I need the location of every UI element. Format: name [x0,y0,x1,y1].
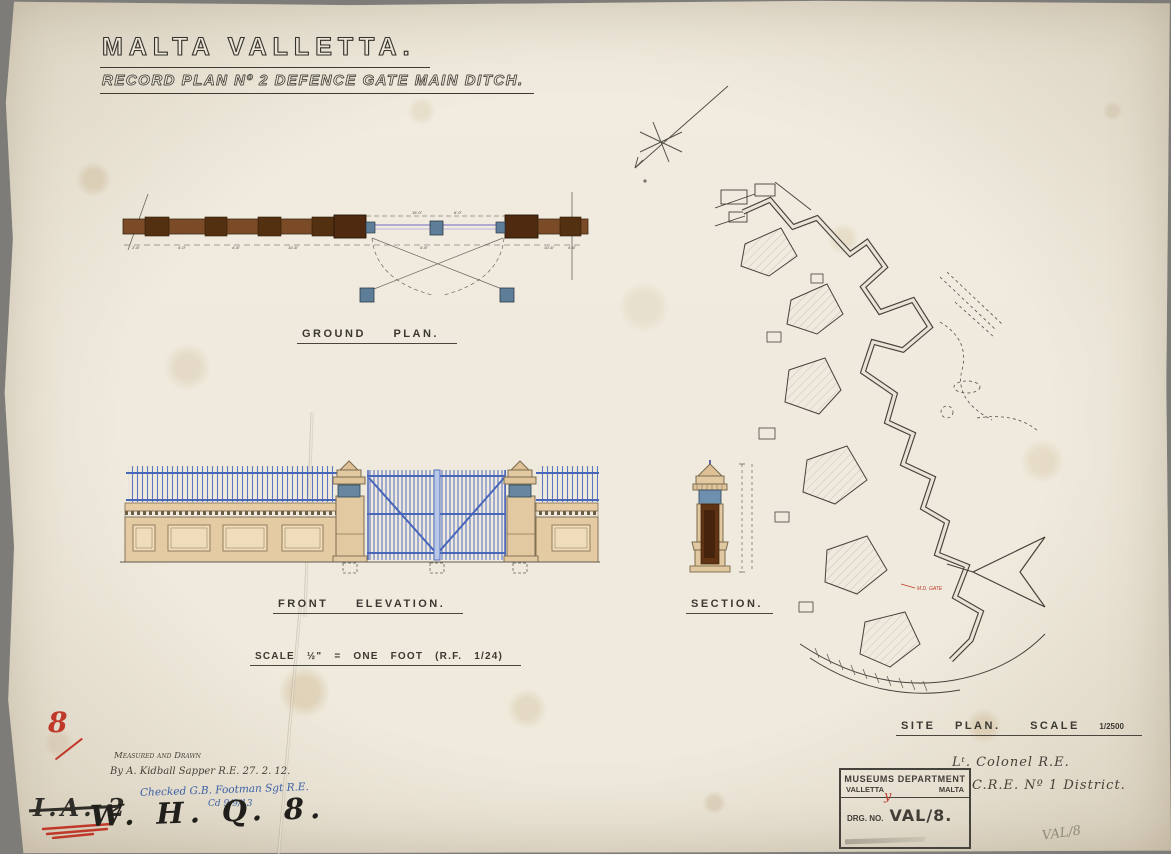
stamp-malta: MALTA [939,785,964,794]
measured-drawn-line2: By A. Kidball Sapper R.E. 27. 2. 12. [110,766,290,777]
stamp-drg-label: DRG. NO. [847,814,883,823]
stamp-drg-number: VAL/8. [889,806,952,825]
scanned-drawing-sheet: MALTA VALLETTA. RECORD PLAN Nº 2 DEFENCE… [0,0,1171,854]
site-plan-drawing: M.D. GATE [715,182,1065,714]
scale-label: SCALE ½" = ONE FOOT (R.F. 1/24) [250,651,521,666]
svg-text:10'-6": 10'-6" [288,245,299,250]
north-arrow [608,82,743,197]
site-plan-scale-word: SCALE [1030,720,1080,732]
ground-plan-drawing: 2'-6" 4'-0" 4'-6" 10'-6" 4'-6" 10'-6" 4'… [120,192,590,317]
front-elevation-label: FRONT ELEVATION. [273,598,463,614]
stamp-title: MUSEUMS DEPARTMENT [841,774,969,784]
museums-department-stamp: MUSEUMS DEPARTMENT VALLETTA MALTA DRG. N… [839,768,971,849]
svg-text:15'-0": 15'-0" [412,210,423,215]
sheet-title: MALTA VALLETTA. [100,33,430,68]
sheet-subtitle: RECORD PLAN Nº 2 DEFENCE GATE MAIN DITCH… [100,72,534,94]
svg-text:6'-0": 6'-0" [454,210,463,215]
svg-text:4'-6": 4'-6" [232,245,241,250]
svg-text:4'-6": 4'-6" [420,245,429,250]
svg-text:4'-6": 4'-6" [568,245,577,250]
svg-text:2'-6": 2'-6" [132,245,141,250]
svg-text:10'-6": 10'-6" [544,245,555,250]
signoff-district: C.R.E. Nº 1 District. [972,778,1126,793]
measured-drawn-line1: Measured and Drawn [114,751,201,761]
svg-text:M.D. GATE: M.D. GATE [917,586,943,592]
site-plan-title: SITE PLAN. [901,720,1001,732]
stamp-valletta: VALLETTA [846,785,884,794]
red-archive-number: 8 [48,706,67,739]
stamp-pencil-scribble [845,837,925,845]
front-elevation-drawing [100,440,600,592]
site-plan-label: SITE PLAN. SCALE 1/2500 [896,720,1142,736]
site-plan-scale-value: 1/2500 [1099,722,1123,731]
red-check-mark: y [884,789,891,804]
svg-text:4'-0": 4'-0" [178,245,187,250]
ground-plan-label: GROUND PLAN. [297,328,457,344]
